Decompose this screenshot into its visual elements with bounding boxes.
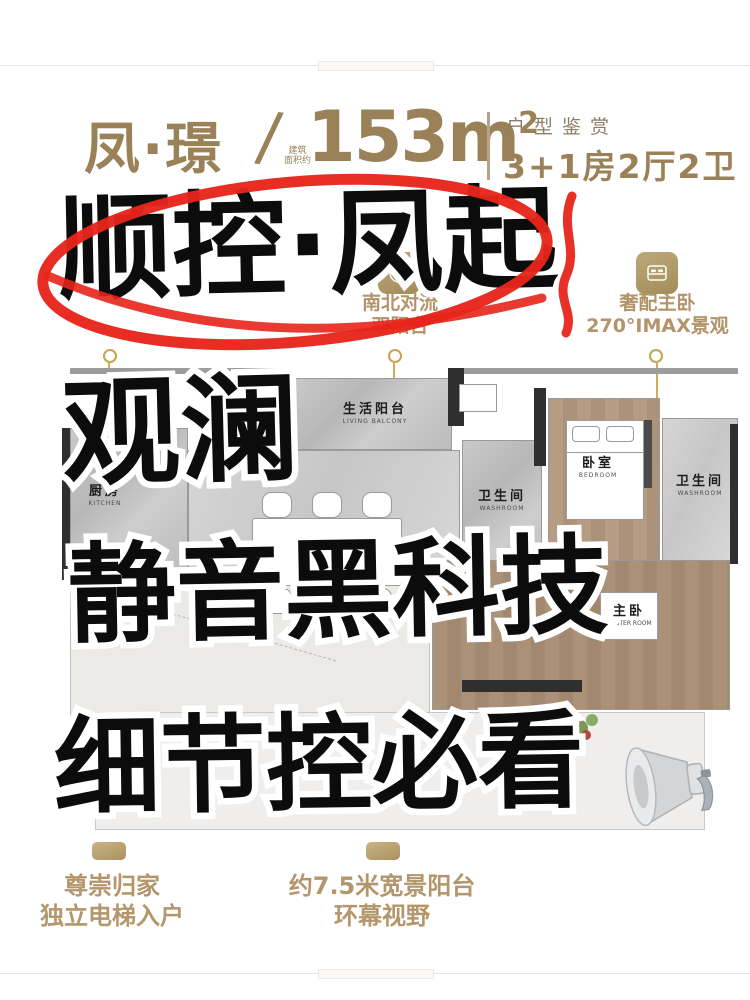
balcony-icon — [366, 842, 400, 860]
bottom-callout-left-line2: 独立电梯入户 — [40, 896, 184, 931]
plant — [586, 714, 598, 726]
leader-line-balcony — [393, 361, 395, 379]
project-name: 凤·璟 — [84, 104, 223, 185]
label-washroom-1: 卫生间 WASHROOM — [478, 485, 526, 512]
poster-page: 凤·璟 / 建筑 面积约 153m2 户型鉴赏 3+1房2厅2卫 南北对流 双阳… — [0, 0, 750, 1000]
top-frame-ornament — [318, 61, 434, 71]
label-living-balcony: 生活阳台 LIVING BALCONY — [343, 398, 408, 425]
fixture-box — [459, 384, 497, 412]
wall — [730, 424, 738, 564]
wall — [534, 388, 546, 466]
headline-line2: 观澜 观澜 — [60, 369, 299, 493]
elevator-icon — [92, 842, 126, 860]
headline-line3: 静音黑科技 静音黑科技 — [67, 533, 609, 650]
bottom-callout-right-line2: 环幕视野 — [334, 896, 430, 931]
megaphone-icon — [612, 735, 727, 835]
label-bedroom: 卧室 BEDROOM — [579, 452, 617, 479]
headline-line4: 细节控必看 细节控必看 — [53, 708, 584, 821]
dining-chair — [312, 492, 342, 518]
headline-line1: 顺控·凤起 顺控·凤起 — [57, 183, 559, 307]
wall — [452, 368, 738, 374]
header-slash: / — [253, 97, 286, 176]
leader-ring-center — [388, 349, 402, 363]
pillow — [606, 426, 634, 442]
callout-master-bedroom: 奢配主卧 270°IMAX景观 — [575, 292, 740, 338]
dining-chair — [362, 492, 392, 518]
label-master: 主卧 MASTER ROOM — [606, 600, 651, 627]
bottom-frame-ornament — [318, 969, 434, 979]
leader-ring-left — [103, 349, 117, 363]
wall — [462, 680, 582, 692]
pillow — [572, 426, 600, 442]
label-washroom-2: 卫生间 WASHROOM — [676, 470, 724, 497]
section-label: 户型鉴赏 — [506, 112, 618, 139]
header-divider — [487, 112, 490, 180]
bed-icon — [636, 252, 678, 294]
